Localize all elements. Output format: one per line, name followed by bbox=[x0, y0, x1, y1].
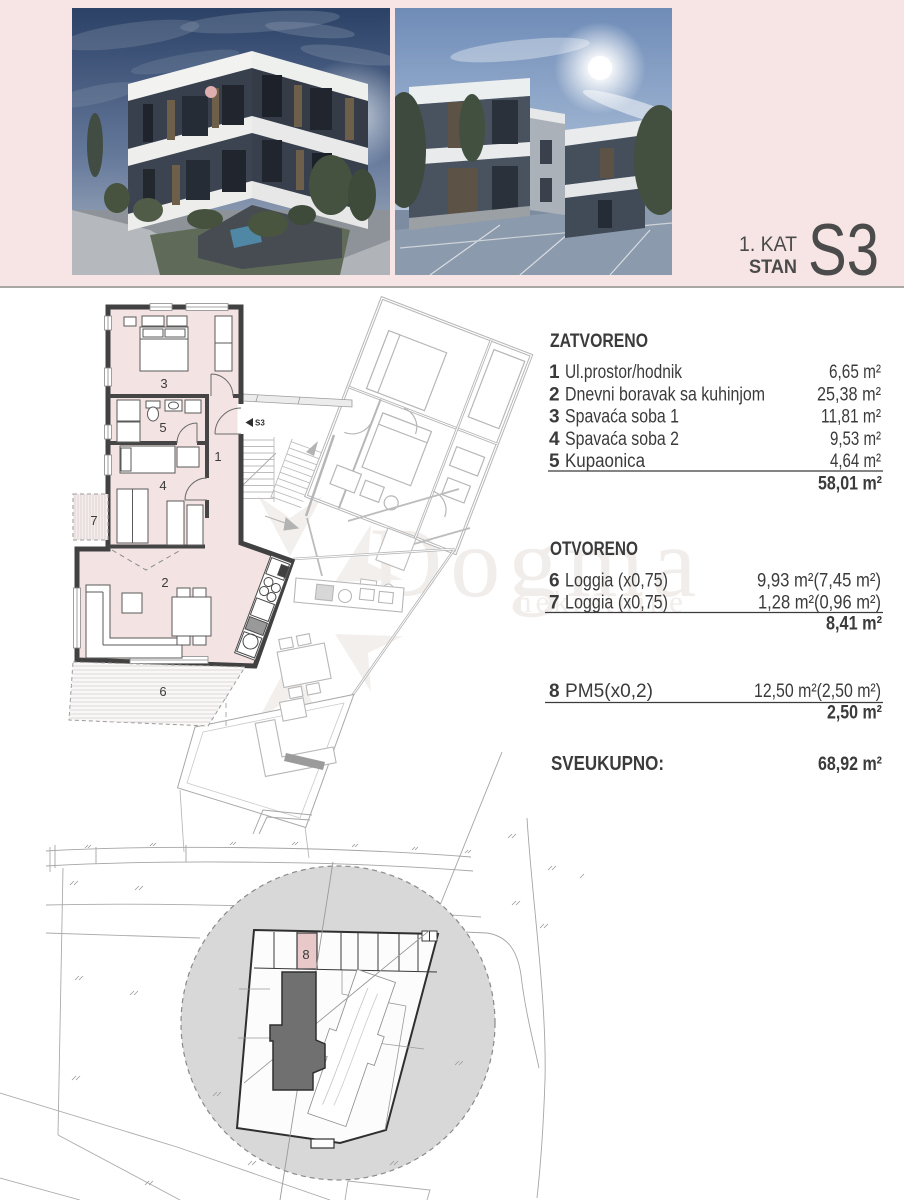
svg-text:2,50 m²: 2,50 m² bbox=[827, 703, 882, 724]
svg-text:3: 3 bbox=[160, 376, 167, 391]
svg-text:12,50 m²(2,50 m²): 12,50 m²(2,50 m²) bbox=[754, 681, 881, 702]
svg-text:58,01 m²: 58,01 m² bbox=[818, 474, 882, 495]
svg-text:STAN: STAN bbox=[749, 257, 797, 278]
svg-text:11,81 m²: 11,81 m² bbox=[821, 407, 881, 428]
svg-text:PM5(x0,2): PM5(x0,2) bbox=[565, 681, 653, 702]
svg-text:Dnevni boravak sa kuhinjom: Dnevni boravak sa kuhinjom bbox=[565, 384, 765, 405]
svg-text:Ul.prostor/hodnik: Ul.prostor/hodnik bbox=[565, 362, 682, 383]
svg-text:1: 1 bbox=[549, 362, 560, 383]
svg-text:7: 7 bbox=[90, 513, 97, 528]
svg-text:8: 8 bbox=[302, 947, 309, 962]
svg-text:1: 1 bbox=[214, 449, 221, 464]
svg-text:Spavaća soba 2: Spavaća soba 2 bbox=[565, 429, 679, 450]
svg-text:ZATVORENO: ZATVORENO bbox=[550, 331, 648, 352]
svg-text:8,41 m²: 8,41 m² bbox=[826, 614, 882, 635]
svg-text:4,64 m²: 4,64 m² bbox=[830, 451, 881, 472]
svg-text:Spavaća soba 1: Spavaća soba 1 bbox=[565, 407, 679, 428]
svg-text:9,53 m²: 9,53 m² bbox=[830, 429, 881, 450]
svg-text:2: 2 bbox=[549, 384, 560, 405]
svg-text:3: 3 bbox=[549, 407, 560, 428]
svg-text:8: 8 bbox=[549, 681, 560, 702]
svg-text:4: 4 bbox=[549, 429, 560, 450]
svg-text:S3: S3 bbox=[808, 210, 879, 291]
svg-text:1. KAT: 1. KAT bbox=[739, 233, 797, 256]
svg-text:Kupaonica: Kupaonica bbox=[565, 451, 645, 472]
svg-text:S3: S3 bbox=[255, 419, 265, 428]
svg-text:Loggia (x0,75): Loggia (x0,75) bbox=[565, 571, 668, 592]
svg-text:Loggia (x0,75): Loggia (x0,75) bbox=[565, 593, 668, 614]
svg-text:6: 6 bbox=[159, 684, 166, 699]
svg-text:6,65 m²: 6,65 m² bbox=[829, 362, 881, 383]
svg-text:2: 2 bbox=[161, 575, 168, 590]
svg-text:25,38 m²: 25,38 m² bbox=[817, 384, 881, 405]
svg-text:OTVORENO: OTVORENO bbox=[550, 539, 638, 560]
svg-text:5: 5 bbox=[549, 451, 560, 472]
svg-text:5: 5 bbox=[159, 420, 166, 435]
svg-text:6: 6 bbox=[549, 571, 560, 592]
svg-text:4: 4 bbox=[159, 478, 166, 493]
svg-text:1,28 m²(0,96 m²): 1,28 m²(0,96 m²) bbox=[758, 593, 881, 614]
svg-text:9,93 m²(7,45 m²): 9,93 m²(7,45 m²) bbox=[757, 571, 881, 592]
svg-text:68,92 m²: 68,92 m² bbox=[818, 754, 882, 775]
svg-text:7: 7 bbox=[549, 593, 560, 614]
svg-text:SVEUKUPNO:: SVEUKUPNO: bbox=[551, 753, 664, 775]
